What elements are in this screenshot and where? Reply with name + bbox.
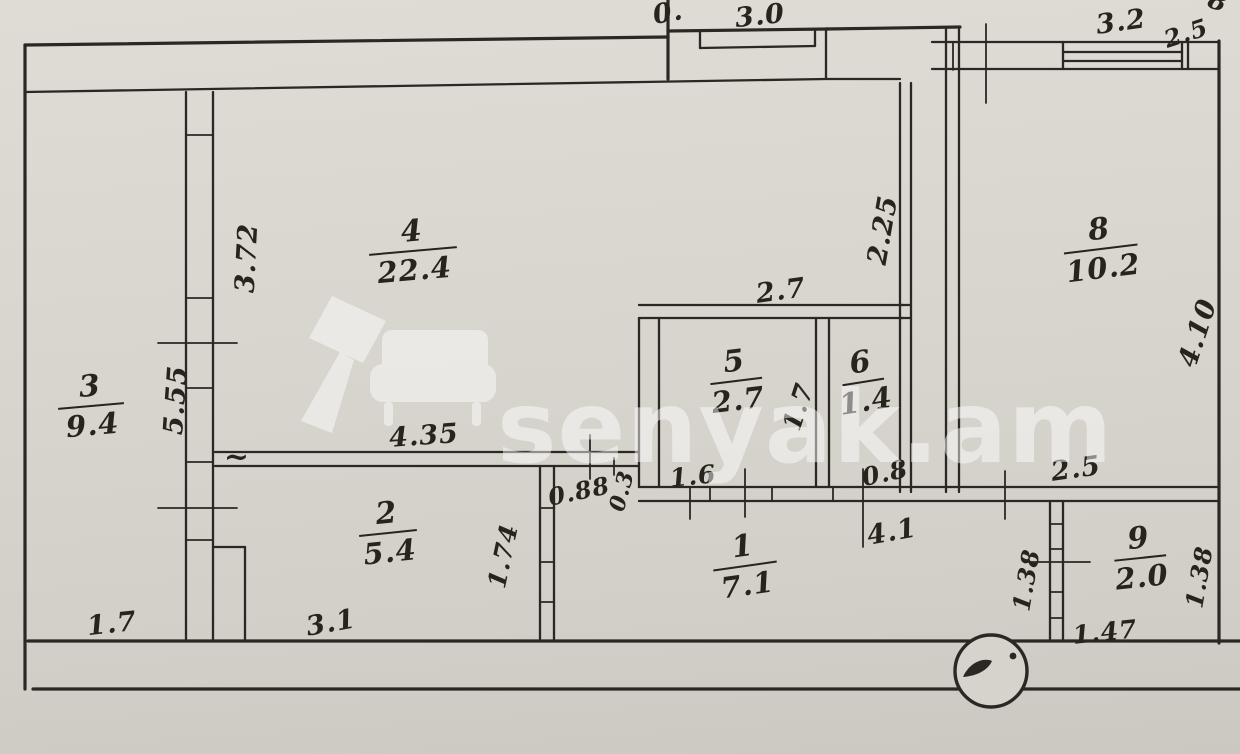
dimension-label: 1.7 — [777, 379, 820, 434]
dimension-label: 4.35 — [388, 418, 460, 454]
dimension-label: 1.7 — [86, 606, 139, 642]
room-number: 4 — [400, 216, 423, 248]
room-label-6: 61.4 — [831, 344, 894, 420]
dimension-label: 1.38 — [1006, 547, 1045, 614]
room-label-1: 17.1 — [709, 528, 782, 604]
dimension-label: 3.2 — [1094, 3, 1148, 41]
dimension-label: 0.8 — [859, 454, 911, 492]
dimension-label: 1.47 — [1071, 614, 1139, 650]
room-label-8: 810.2 — [1060, 211, 1142, 288]
room-number: 8 — [1086, 214, 1110, 246]
room-area: 1.4 — [837, 383, 894, 420]
dimension-label: 2.25 — [862, 193, 905, 267]
room-label-9: 92.0 — [1110, 521, 1170, 594]
room-label-5: 52.7 — [705, 344, 766, 418]
room-number: 2 — [374, 498, 398, 530]
dimension-label: 3.0 — [734, 0, 787, 34]
room-area: 9.4 — [65, 409, 121, 443]
room-area: 2.7 — [710, 383, 767, 418]
floor-plan-scan: 17.125.439.4422.452.761.4810.292.00.3.03… — [0, 0, 1240, 754]
room-number: 9 — [1126, 523, 1150, 555]
dimension-label: 4.1 — [865, 512, 920, 551]
dimension-label: 2.5 — [1049, 450, 1103, 488]
room-area: 5.4 — [362, 535, 418, 569]
room-area: 22.4 — [376, 253, 453, 288]
room-number: 5 — [721, 346, 745, 378]
annotation-layer: 17.125.439.4422.452.761.4810.292.00.3.03… — [0, 0, 1240, 754]
room-number: 1 — [730, 531, 755, 564]
dimension-label: 1.6 — [668, 459, 717, 493]
dimension-label: 3.72 — [230, 222, 265, 293]
dimension-label: 4.10 — [1172, 295, 1223, 371]
room-label-3: 39.4 — [55, 369, 127, 442]
dimension-label: 0.88 — [545, 470, 612, 511]
dimension-label: 1.74 — [482, 521, 524, 591]
room-label-4: 422.4 — [366, 213, 460, 288]
room-number: 6 — [847, 347, 872, 380]
dimension-label: 2.7 — [754, 272, 808, 310]
dimension-label: 1.38 — [1179, 544, 1218, 611]
dimension-label: 0. — [650, 0, 685, 31]
room-area: 2.0 — [1114, 560, 1170, 594]
dimension-label: 2.5 — [1160, 12, 1212, 53]
room-number: 3 — [78, 371, 101, 403]
dimension-label: ~ — [224, 440, 250, 475]
room-label-2: 25.4 — [356, 496, 421, 570]
room-area: 10.2 — [1065, 249, 1143, 287]
dimension-label: 3.1 — [304, 603, 359, 642]
dimension-label: 8 — [1204, 0, 1232, 19]
room-area: 7.1 — [719, 567, 776, 603]
dimension-label: 5.55 — [158, 364, 194, 436]
dimension-label: 0.3 — [604, 468, 640, 515]
